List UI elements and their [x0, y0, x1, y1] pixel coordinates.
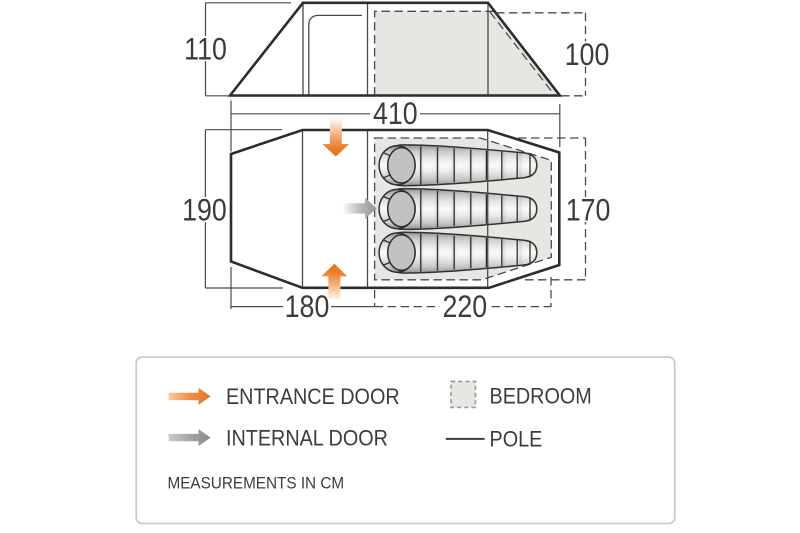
svg-text:180: 180 [285, 290, 330, 324]
svg-text:220: 220 [442, 290, 487, 324]
svg-text:ENTRANCE DOOR: ENTRANCE DOOR [226, 385, 400, 409]
svg-text:190: 190 [182, 193, 227, 227]
svg-text:INTERNAL DOOR: INTERNAL DOOR [226, 427, 388, 451]
svg-text:100: 100 [565, 38, 610, 72]
svg-text:MEASUREMENTS IN CM: MEASUREMENTS IN CM [167, 474, 344, 493]
svg-text:BEDROOM: BEDROOM [490, 385, 592, 409]
svg-text:POLE: POLE [490, 427, 543, 451]
svg-text:170: 170 [566, 193, 611, 227]
svg-text:110: 110 [184, 32, 227, 66]
svg-text:410: 410 [373, 97, 418, 131]
